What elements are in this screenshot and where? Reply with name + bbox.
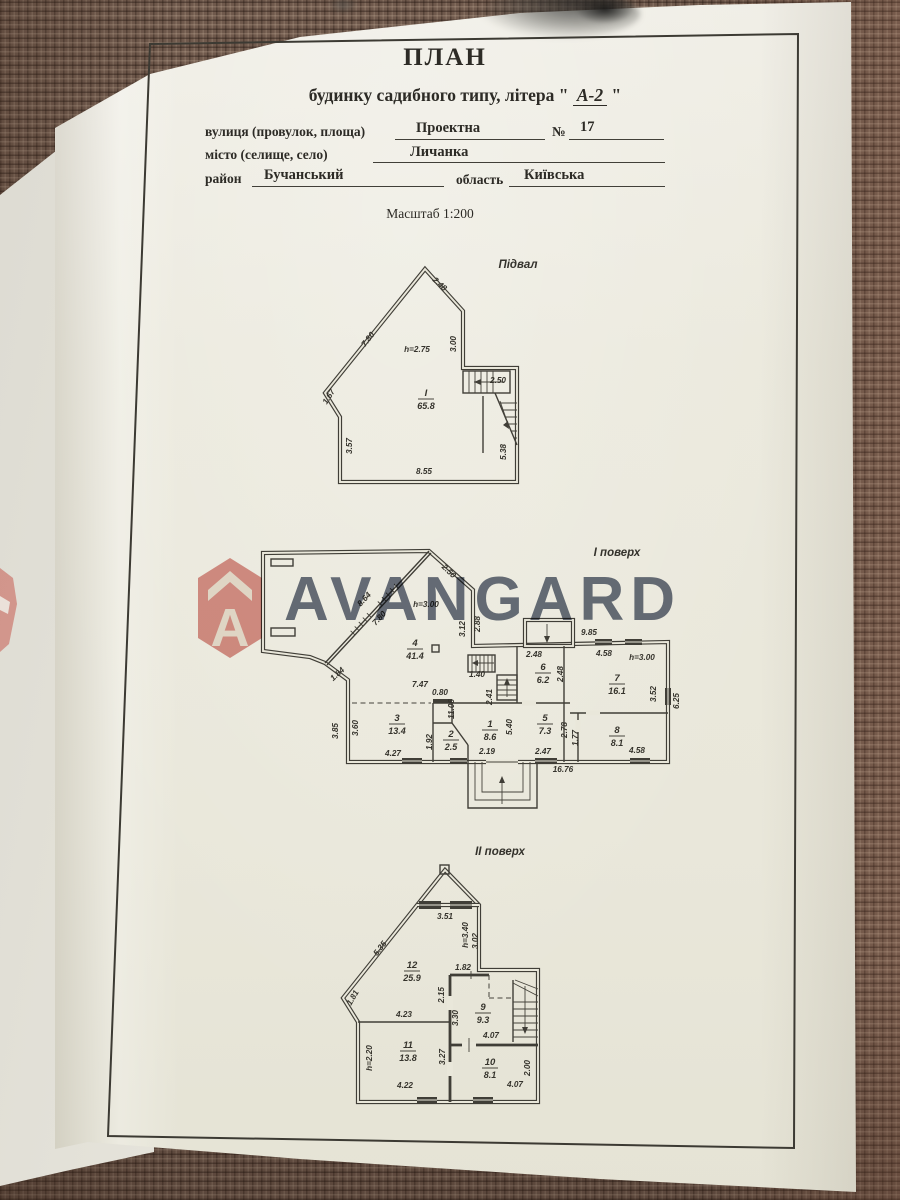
room-number: 12 [407,960,418,971]
dimension-label: 1.67 [321,387,337,406]
district-value: Бучанський [264,167,343,184]
region-underline [509,186,665,187]
floor-plan-basement: Підвал2.487.803.00h=2.752.501.673.578.55… [298,253,563,503]
room-area: 8.6 [484,732,498,742]
dimension-label: 2.50 [489,376,506,385]
number-value: 17 [580,119,595,136]
region-value: Київська [524,167,584,184]
city-value: Личанка [410,144,468,161]
room-area: 13.8 [399,1053,417,1063]
room-area: 41.4 [405,651,424,661]
dimension-label: 2.15 [437,987,446,1004]
dimension-label: 3.60 [351,720,360,736]
district-label: район [205,171,242,187]
dimension-label: 4.07 [506,1080,523,1089]
document-subtitle: будинку садибного типу, літера " А-2 " [215,85,715,106]
dimension-label: 5.38 [499,444,508,460]
watermark-brand: AVANGARD [284,564,681,635]
room-number: 1 [487,719,492,730]
room-area: 65.8 [417,401,435,411]
dimension-label: 3.51 [437,912,453,921]
subtitle-prefix: будинку садибного типу, літера " [309,85,569,105]
city-label: місто (селище, село) [205,147,328,163]
room-number: 8 [614,725,620,736]
room-number: 9 [480,1002,486,1013]
street-value: Проектна [416,120,480,137]
room-number: 5 [542,713,548,724]
dimension-label: 3.02 [471,933,480,949]
dimension-label: 3.27 [438,1049,447,1065]
dimension-label: 2.48 [556,666,565,683]
room-number: 2 [447,729,454,740]
dimension-label: 7.47 [412,680,428,689]
room-area: 2.5 [444,742,459,752]
street-underline [395,139,545,140]
plan-title: Підвал [498,259,537,271]
city-underline [373,162,665,163]
partial-red-glyph [0,562,22,658]
dimension-label: 3.30 [451,1010,460,1026]
district-underline [252,186,444,187]
dimension-label: 2.00 [523,1060,532,1077]
region-label: область [456,172,503,188]
dimension-label: 4.58 [595,649,612,658]
dimension-label: 1.40 [469,670,485,679]
subtitle-suffix: " [612,85,622,105]
dimension-label: 3.85 [331,723,340,739]
avangard-house-icon: A [196,556,264,660]
dimension-label: 8.55 [416,467,432,476]
dimension-label: 6.25 [672,693,681,709]
dimension-label: h=2.20 [365,1045,374,1071]
street-label: вулиця (провулок, площа) [205,124,365,140]
room-area: 25.9 [402,973,421,983]
dimension-label: 16.76 [553,765,574,774]
dimension-label: 5.40 [505,719,514,735]
document-title: ПЛАН [380,44,510,72]
dimension-label: 2.47 [534,747,551,756]
letter-value: А-2 [573,85,607,106]
room-area: 7.3 [539,726,552,736]
room-area: 13.4 [388,726,406,736]
dimension-label: 4.07 [482,1031,499,1040]
room-number: 10 [485,1057,496,1068]
room-area: 6.2 [537,675,550,685]
dimension-label: 2.19 [478,747,495,756]
dimension-label: 2.78 [560,722,569,739]
dimension-label: 3.52 [649,686,658,702]
number-underline [569,139,664,140]
dimension-label: 11.06 [447,699,456,719]
dimension-label: 2.41 [485,689,494,706]
dimension-label: h=3.00 [629,653,655,662]
dimension-label: 4.23 [395,1010,412,1019]
dimension-label: 1.82 [455,963,471,972]
floor-plan-second-floor: ІІ поверх3.51h=3.403.025.351.811.822.153… [326,846,666,1108]
room-number: 6 [540,662,546,673]
dimension-label: h=3.40 [461,922,470,948]
room-area: 16.1 [608,686,626,696]
dimension-label: 1.77 [571,730,580,746]
dimension-label: 0.80 [432,688,448,697]
room-area: 9.3 [477,1015,490,1025]
room-number: 3 [394,713,400,724]
number-label: № [552,124,566,140]
svg-text:A: A [211,598,250,658]
dimension-label: 4.58 [628,746,645,755]
dimension-label: 4.27 [384,749,401,758]
plan-title: І поверх [594,547,641,559]
dimension-label: 3.57 [345,438,354,454]
room-number: I [425,388,428,399]
room-number: 4 [411,638,418,649]
dimension-label: 4.22 [396,1081,413,1090]
dimension-label: 2.48 [525,650,542,659]
scale-note: Масштаб 1:200 [355,206,505,222]
room-area: 8.1 [611,738,624,748]
dimension-label: 3.00 [449,336,458,352]
room-number: 7 [614,673,620,684]
room-area: 8.1 [484,1070,497,1080]
plan-title: ІІ поверх [475,846,525,858]
room-number: 11 [403,1040,413,1051]
dimension-label: h=2.75 [404,345,430,354]
dimension-label: 1.92 [425,734,434,750]
